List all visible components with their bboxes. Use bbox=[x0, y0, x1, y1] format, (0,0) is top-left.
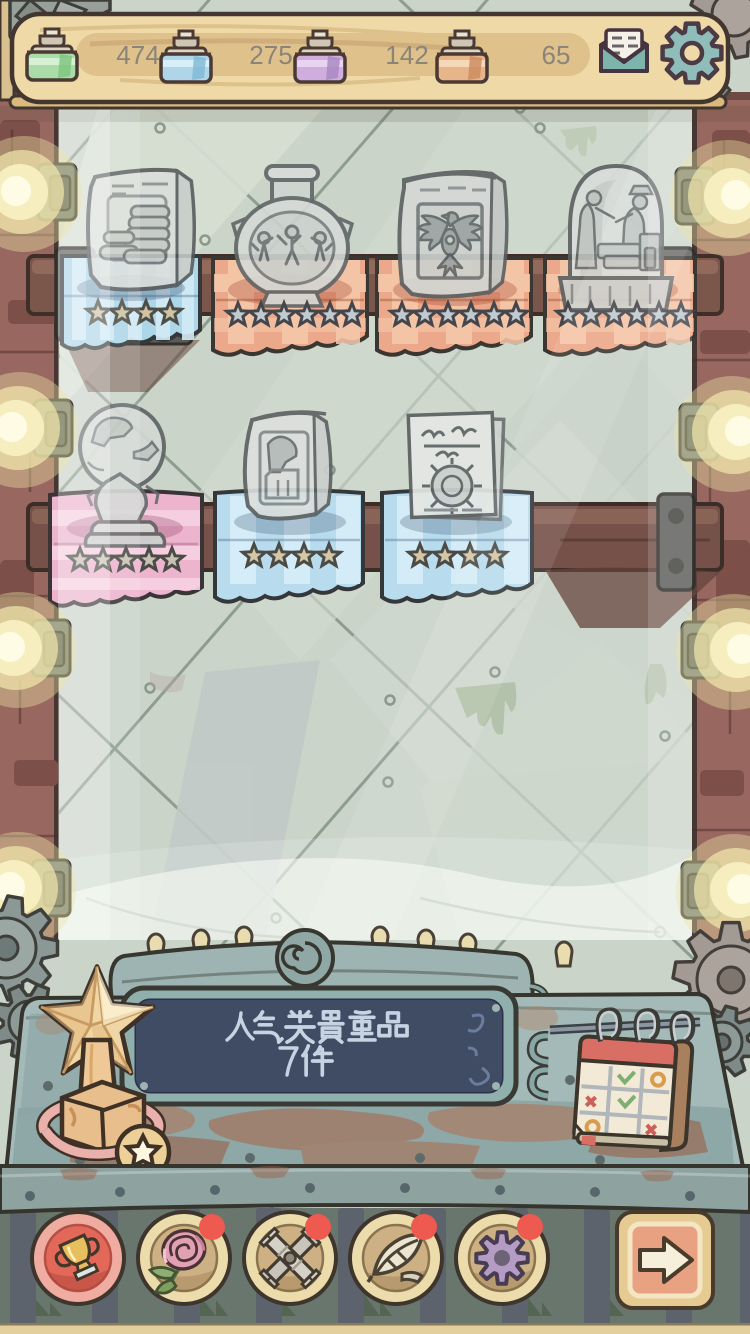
svg-text:142: 142 bbox=[385, 40, 428, 70]
svg-text:65: 65 bbox=[542, 40, 571, 70]
svg-text:474: 474 bbox=[116, 40, 159, 70]
svg-text:275: 275 bbox=[249, 40, 292, 70]
